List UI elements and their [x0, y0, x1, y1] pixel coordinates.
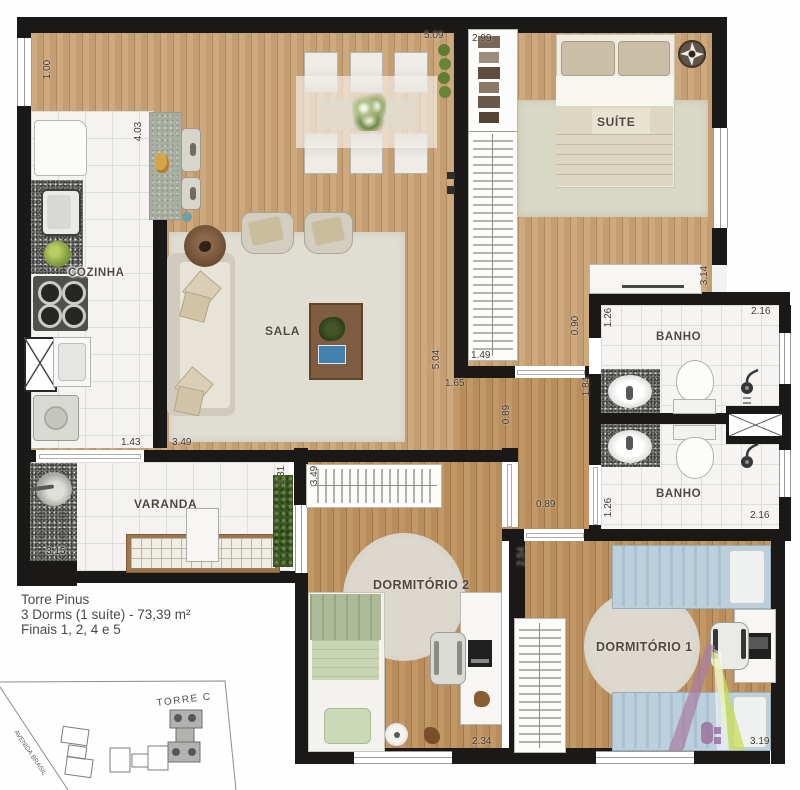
svg-text:AVENIDA BRASIL: AVENIDA BRASIL [12, 729, 47, 777]
svg-text:TORRE C: TORRE C [156, 691, 212, 709]
